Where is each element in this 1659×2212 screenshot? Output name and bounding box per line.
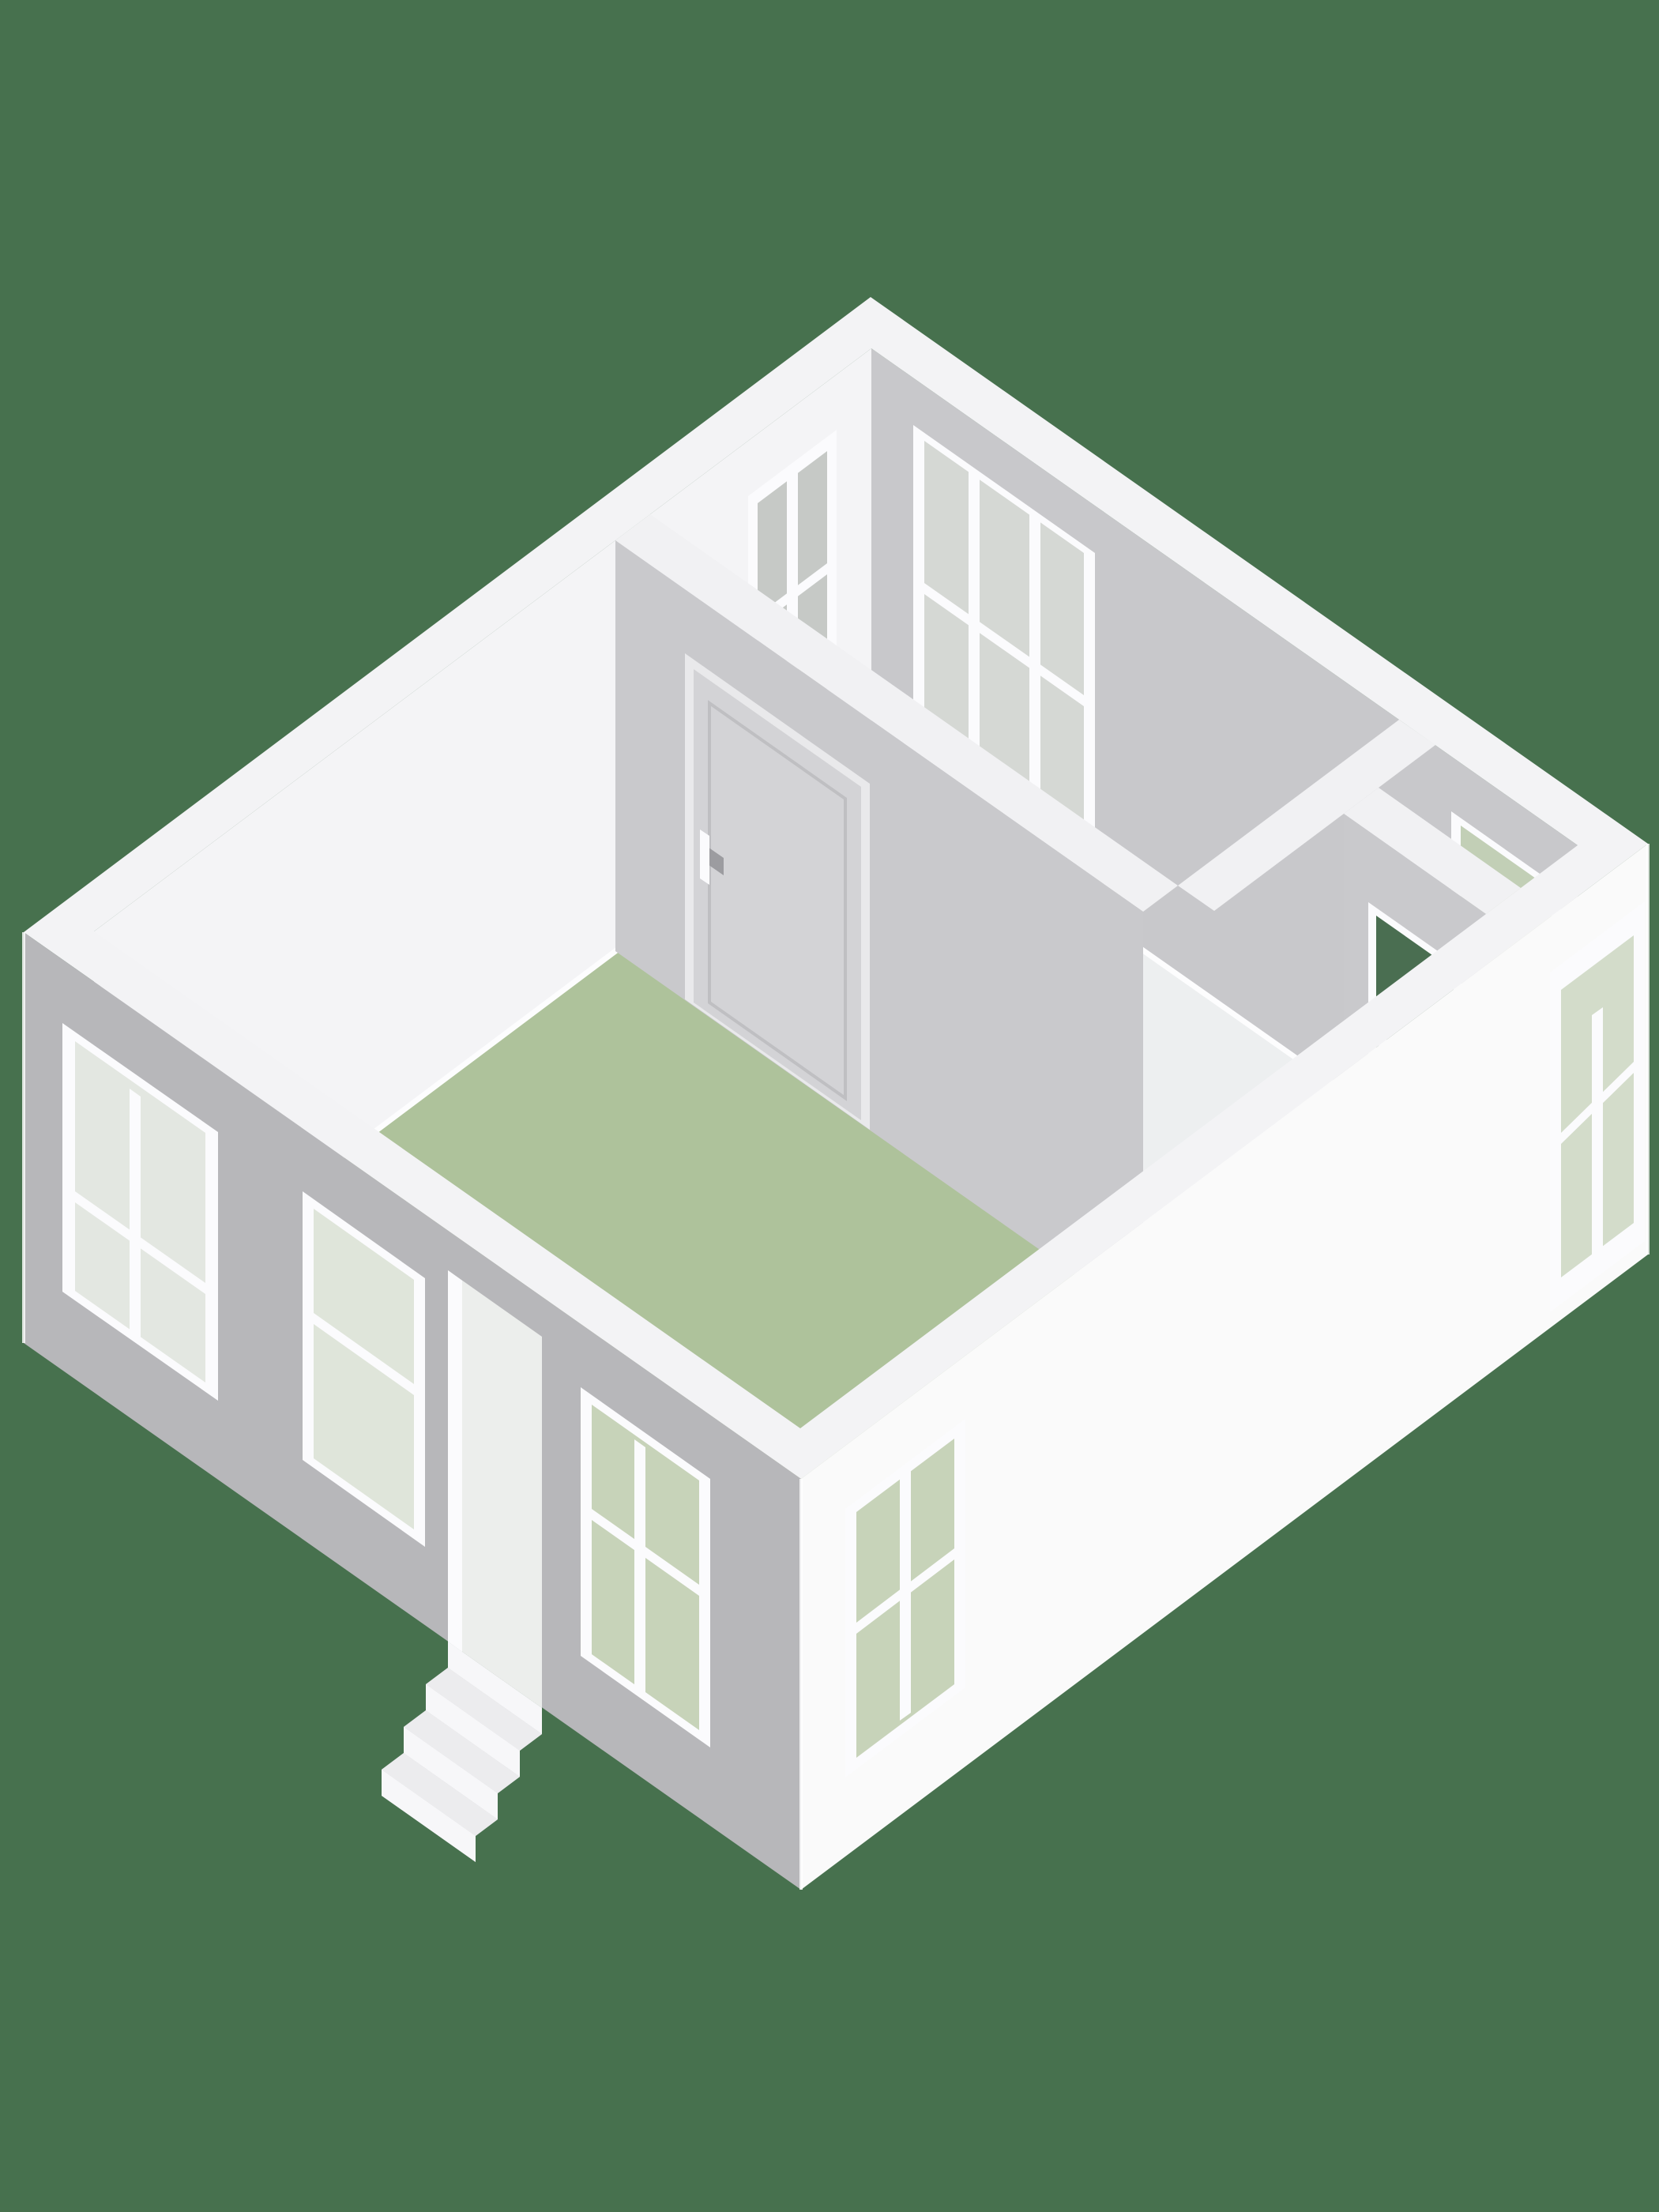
door-handle-plate [700,829,709,885]
sw-window-south-mullion-v [634,1439,645,1697]
entrance-jamb [448,1270,462,1652]
se-window-east [1550,901,1645,1312]
entrance-opening [448,1270,542,1708]
se-window-east-mullion-v [1592,1007,1603,1259]
sw-window-west-mullion-v [130,1089,141,1343]
floorplan-stage [0,0,1659,2212]
floorplan-render [0,0,1659,2212]
